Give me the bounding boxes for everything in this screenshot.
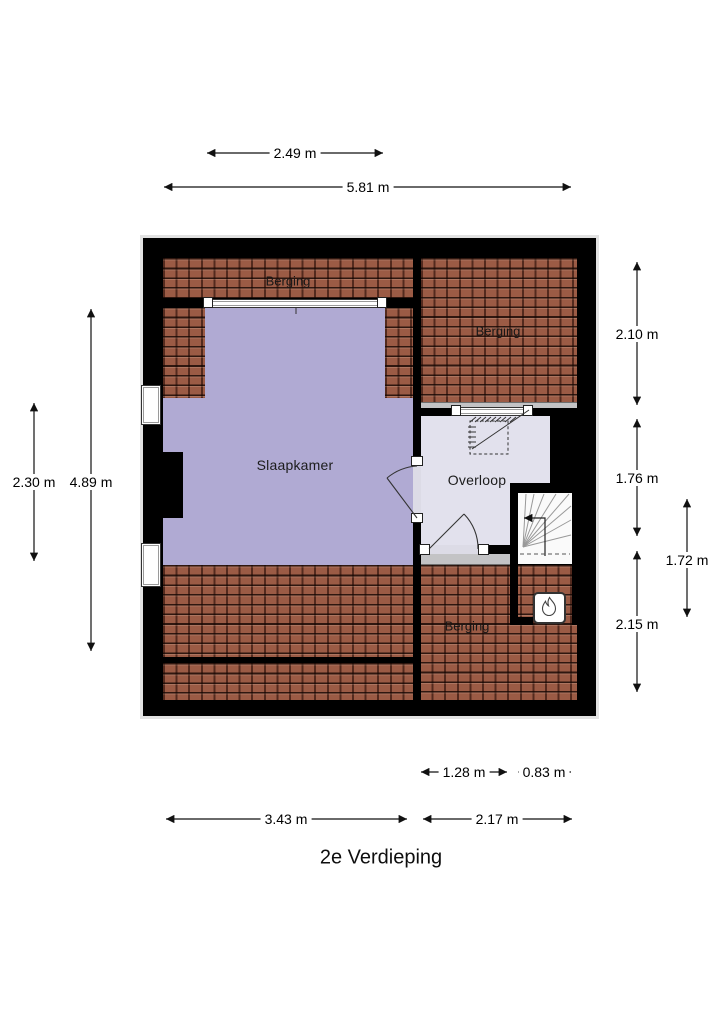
window-bedroom-top	[205, 299, 385, 308]
wall-landing-top-right	[531, 408, 550, 416]
room-label-storage-top-right: Berging	[476, 324, 521, 339]
wall-stairs-right	[572, 493, 577, 625]
dim-label-left-total: 4.89 m	[66, 474, 117, 490]
wall-landing-right	[550, 408, 577, 493]
window-left-upper	[141, 385, 161, 425]
window-post	[377, 297, 387, 308]
dim-label-total-width: 5.81 m	[343, 179, 394, 195]
dim-label-bottom-left: 3.43 m	[261, 811, 312, 827]
window-post	[523, 405, 533, 416]
door-opening-bedroom-landing	[413, 466, 421, 513]
dim-label-bottom-right: 2.17 m	[472, 811, 523, 827]
dim-label-right-top: 2.10 m	[612, 326, 663, 342]
wall-stairs-stub	[510, 617, 533, 625]
door-opening-landing-bottom	[429, 545, 478, 554]
room-label-bedroom: Slaapkamer	[257, 457, 334, 473]
door-post	[411, 513, 423, 523]
wall-landing-top-left	[421, 408, 455, 416]
wall-stairs-top	[510, 483, 577, 493]
wall-bedroom-window-right	[383, 298, 413, 308]
room-label-storage-bottom: Berging	[445, 619, 490, 634]
roof-strip-left-of-bedroom	[163, 307, 207, 398]
dim-label-right-bottom: 2.15 m	[612, 616, 663, 632]
door-post	[419, 544, 430, 555]
dim-label-stairs-height: 1.72 m	[662, 552, 713, 568]
wall-stairs-left	[510, 483, 518, 625]
chimney-block	[163, 452, 183, 518]
boiler-unit	[533, 592, 566, 624]
roof-area-bottom-left-strip	[163, 663, 413, 700]
roof-area-bottom-left	[163, 565, 413, 657]
dim-label-landing-width: 1.28 m	[439, 764, 490, 780]
knee-wall-below-landing	[419, 553, 510, 565]
window-left-lower	[141, 543, 161, 587]
floor-title: 2e Verdieping	[320, 847, 442, 870]
room-label-landing: Overloop	[448, 472, 506, 488]
wall-top-divider	[413, 258, 421, 307]
wall-bottom-divider	[163, 657, 413, 663]
dim-label-stairs-width: 0.83 m	[519, 764, 570, 780]
room-label-storage-top-left: Berging	[266, 274, 311, 289]
window-post	[451, 405, 461, 416]
roof-area-storage-bottom	[419, 565, 577, 700]
wall-bedroom-window-left	[163, 298, 207, 308]
stairwell-floor	[518, 493, 572, 564]
dim-label-right-landing: 1.76 m	[612, 470, 663, 486]
window-landing-top	[453, 407, 533, 416]
roof-strip-right-of-bedroom	[385, 307, 413, 398]
door-post	[478, 544, 489, 555]
window-post	[203, 297, 213, 308]
dim-label-left-inner: 2.30 m	[9, 474, 60, 490]
dim-label-top-window: 2.49 m	[270, 145, 321, 161]
bedroom-floor	[205, 307, 413, 565]
door-post	[411, 456, 423, 466]
floorplan-canvas: Berging Berging Slaapkamer Overloop Berg…	[0, 0, 720, 1017]
